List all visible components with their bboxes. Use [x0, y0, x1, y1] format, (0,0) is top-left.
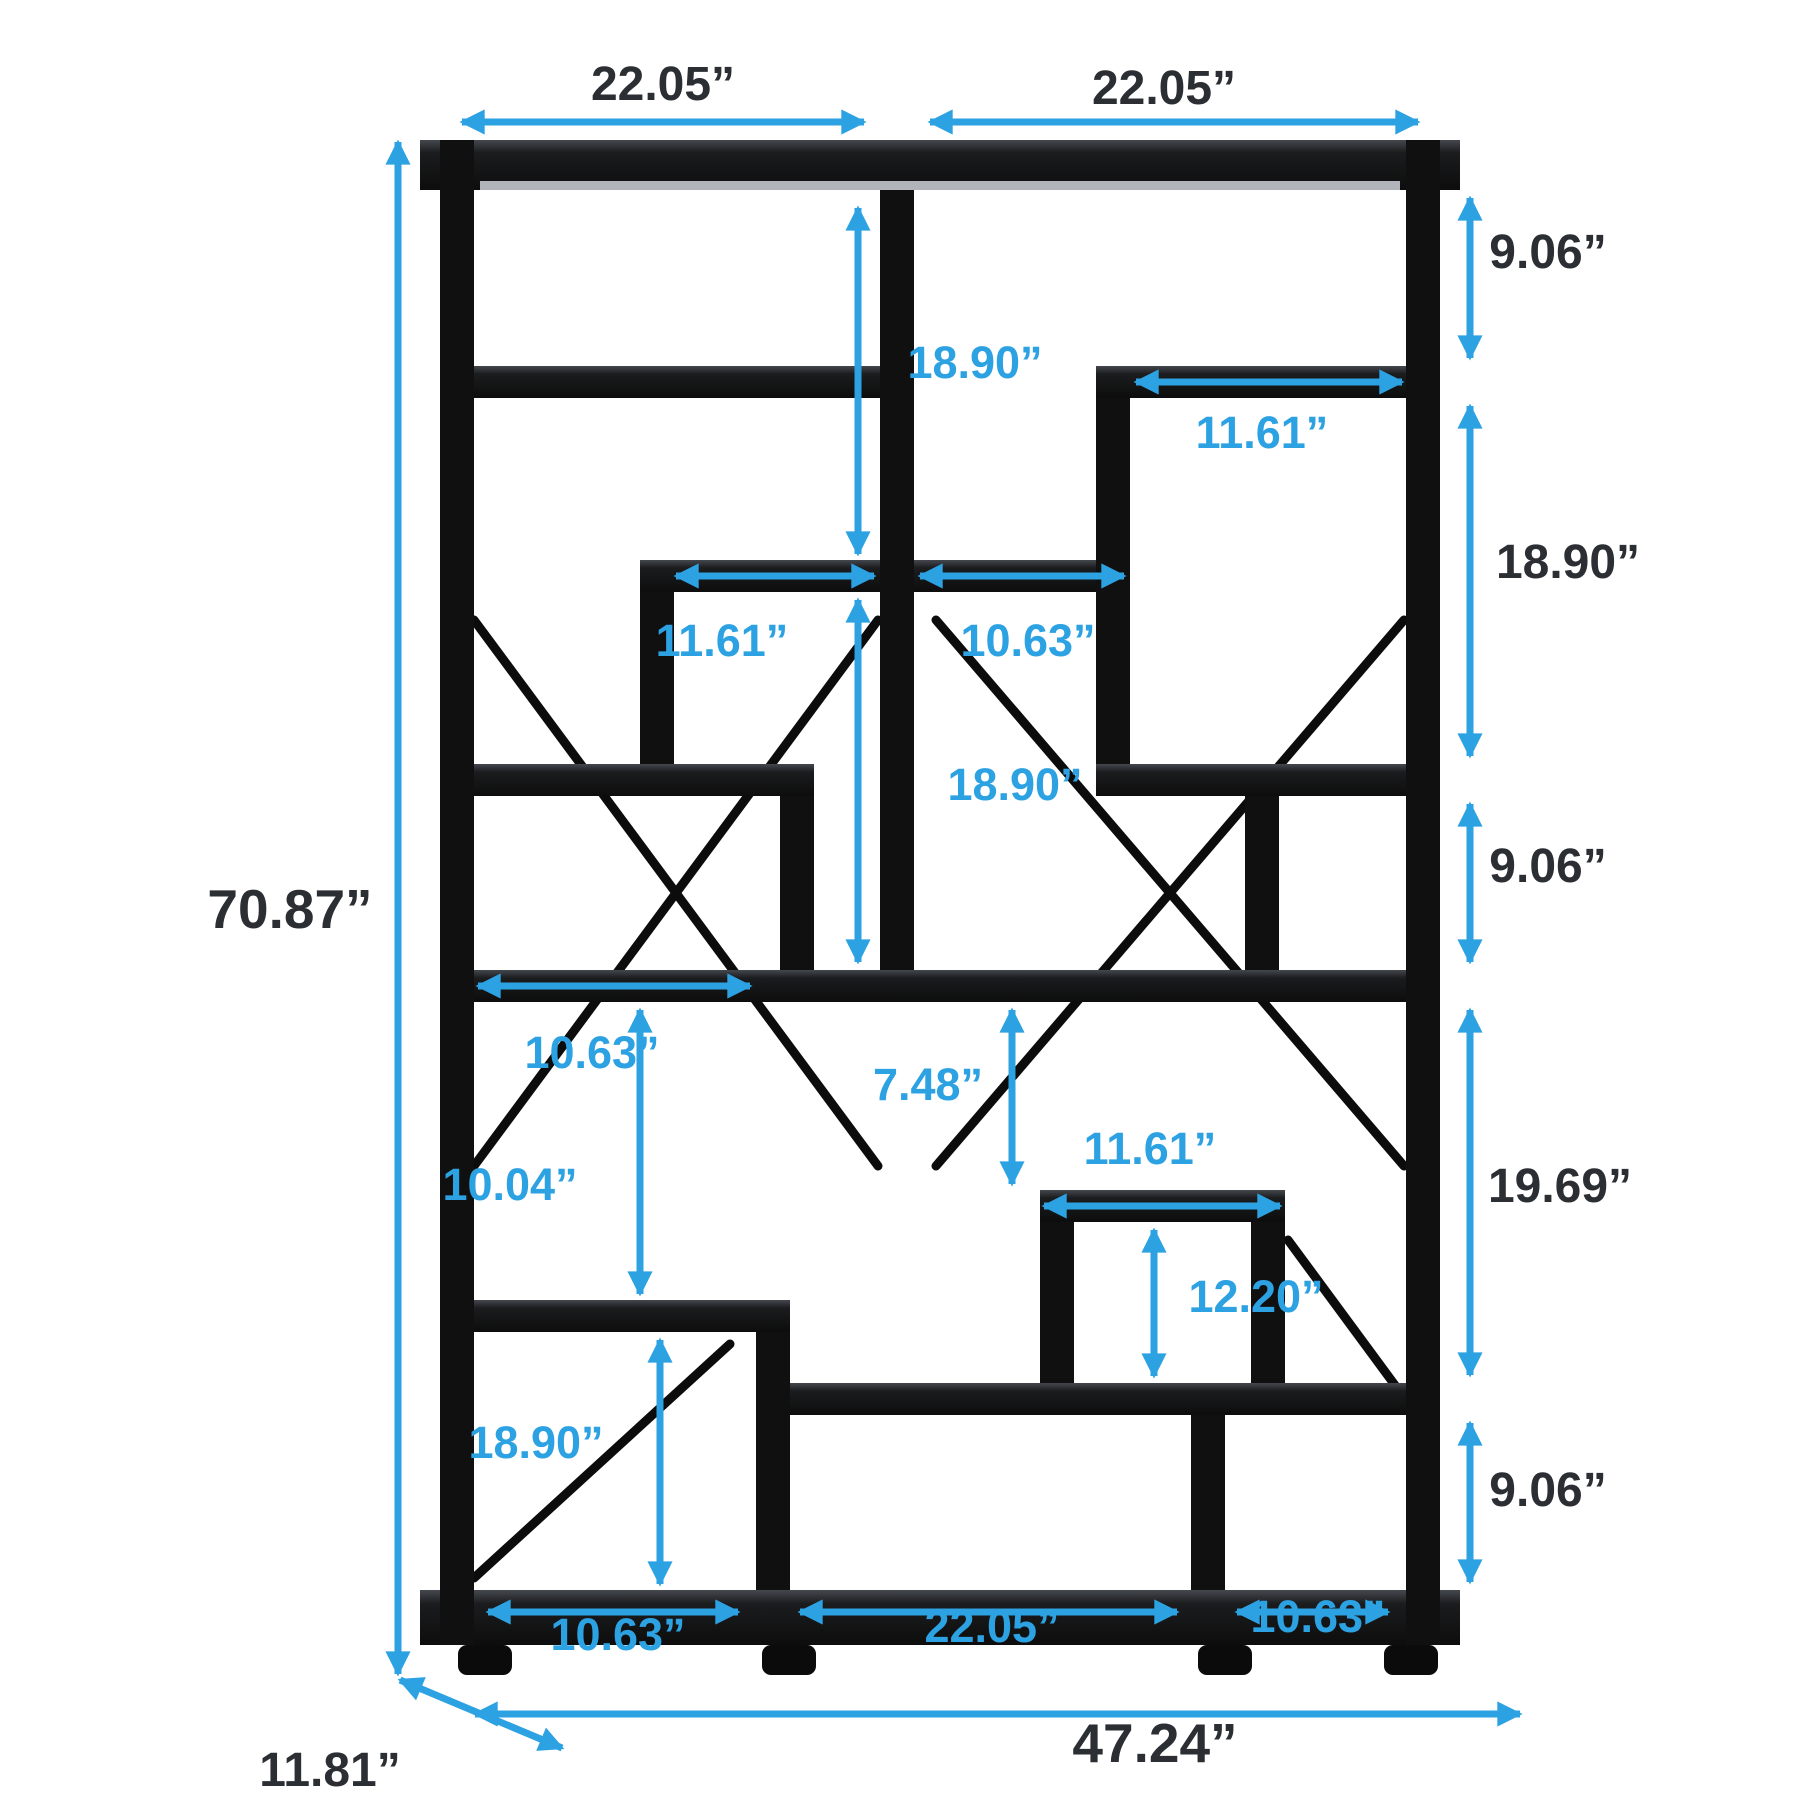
label-center-middle-gap: 18.90”	[947, 759, 1082, 810]
top-board-highlight	[480, 181, 1400, 190]
small-box-left-leg	[1040, 1222, 1074, 1383]
label-right-middle-gap: 9.06”	[1489, 840, 1606, 893]
label-top-left-width: 22.05”	[591, 58, 735, 111]
diagram-canvas: 22.05” 22.05” 9.06” 18.90” 9.06” 19.69” …	[0, 0, 1800, 1800]
label-right-lower-gap: 19.69”	[1488, 1160, 1632, 1213]
bookshelf-dimension-diagram: 22.05” 22.05” 9.06” 18.90” 9.06” 19.69” …	[0, 0, 1800, 1800]
label-small-box-height: 12.20”	[1188, 1271, 1323, 1322]
label-center-top-gap: 18.90”	[907, 337, 1042, 388]
label-middle-shelf-right-width: 10.63”	[960, 615, 1095, 666]
foot	[1384, 1645, 1438, 1675]
label-total-width: 47.24”	[1072, 1712, 1237, 1774]
right-mid-divider	[1245, 796, 1279, 970]
label-base-center-cell: 22.05”	[924, 1601, 1059, 1652]
label-right-bottom-gap: 9.06”	[1489, 1464, 1606, 1517]
label-small-box-top-gap: 7.48”	[873, 1059, 983, 1110]
label-depth: 11.81”	[259, 1744, 400, 1797]
shelf-d-left	[440, 1300, 790, 1332]
label-middle-shelf-left-width: 11.61”	[656, 615, 789, 666]
shelf-b-right	[1096, 764, 1440, 796]
foot	[762, 1645, 816, 1675]
label-right-upper-gap: 18.90”	[1496, 536, 1640, 589]
label-right-top-gap: 9.06”	[1489, 226, 1606, 279]
label-bottom-left-gap: 18.90”	[468, 1417, 603, 1468]
lower-right-divider	[1191, 1415, 1225, 1590]
left-mid-divider	[780, 796, 814, 970]
shelf-a-left	[440, 366, 914, 398]
lower-left-divider	[756, 1332, 790, 1590]
foot	[458, 1645, 512, 1675]
label-base-left-cell: 10.63”	[550, 1609, 685, 1660]
label-small-box-width: 11.61”	[1084, 1123, 1217, 1174]
label-total-height: 70.87”	[207, 878, 372, 940]
label-base-right-cell: 10.63”	[1250, 1591, 1385, 1642]
foot	[1198, 1645, 1252, 1675]
label-top-box-width: 11.61”	[1196, 407, 1329, 458]
top-box-left-leg	[1096, 398, 1130, 764]
shelf-d-right	[756, 1383, 1440, 1415]
right-post	[1406, 140, 1440, 1645]
shelf-b-left	[440, 764, 814, 796]
center-post	[880, 190, 914, 970]
label-top-right-width: 22.05”	[1092, 62, 1236, 115]
label-left-lower-gap: 10.04”	[442, 1159, 577, 1210]
label-left-cell-width: 10.63”	[524, 1027, 659, 1078]
